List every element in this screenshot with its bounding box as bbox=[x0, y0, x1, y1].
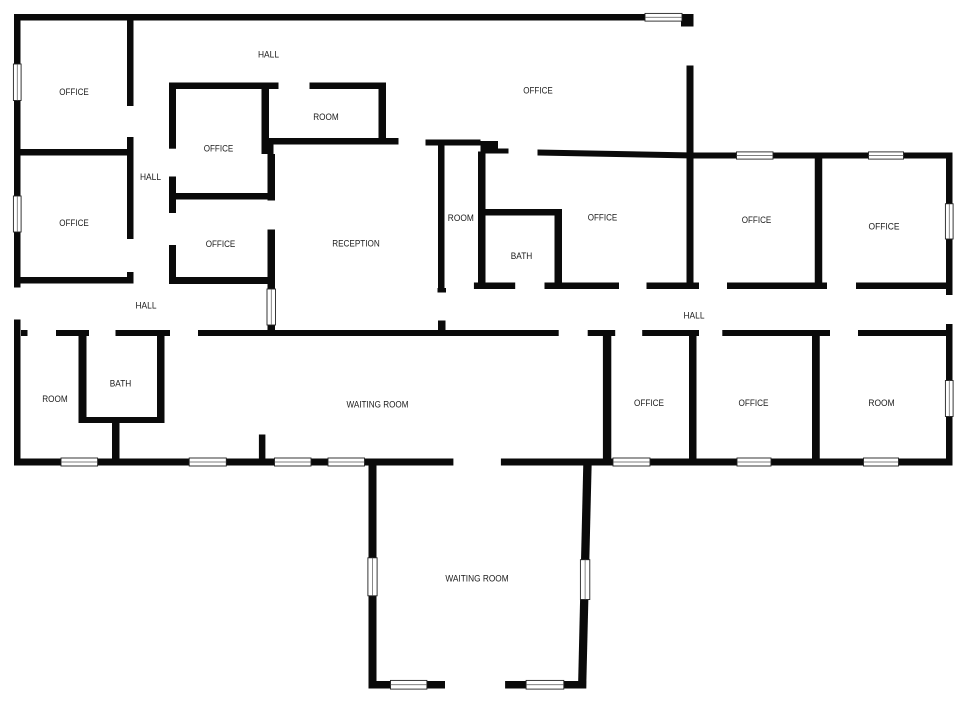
svg-text:HALL: HALL bbox=[136, 301, 157, 311]
svg-text:OFFICE: OFFICE bbox=[523, 86, 553, 96]
svg-text:OFFICE: OFFICE bbox=[739, 398, 769, 408]
svg-text:BATH: BATH bbox=[511, 251, 533, 261]
svg-text:BATH: BATH bbox=[110, 379, 132, 389]
svg-text:RECEPTION: RECEPTION bbox=[332, 239, 380, 249]
svg-text:OFFICE: OFFICE bbox=[588, 213, 618, 223]
svg-text:OFFICE: OFFICE bbox=[869, 222, 900, 232]
svg-text:HALL: HALL bbox=[258, 50, 279, 60]
svg-text:OFFICE: OFFICE bbox=[59, 218, 89, 228]
svg-text:ROOM: ROOM bbox=[313, 112, 339, 122]
svg-text:ROOM: ROOM bbox=[448, 213, 474, 223]
svg-text:ROOM: ROOM bbox=[42, 394, 68, 404]
svg-text:WAITING ROOM: WAITING ROOM bbox=[445, 574, 508, 584]
svg-text:OFFICE: OFFICE bbox=[742, 215, 772, 225]
svg-text:OFFICE: OFFICE bbox=[59, 87, 89, 97]
svg-text:HALL: HALL bbox=[140, 172, 161, 182]
svg-text:OFFICE: OFFICE bbox=[204, 144, 234, 154]
svg-text:WAITING ROOM: WAITING ROOM bbox=[347, 400, 409, 410]
svg-text:HALL: HALL bbox=[684, 311, 705, 321]
svg-text:ROOM: ROOM bbox=[868, 398, 894, 408]
svg-text:OFFICE: OFFICE bbox=[634, 398, 664, 408]
svg-text:OFFICE: OFFICE bbox=[206, 239, 236, 249]
